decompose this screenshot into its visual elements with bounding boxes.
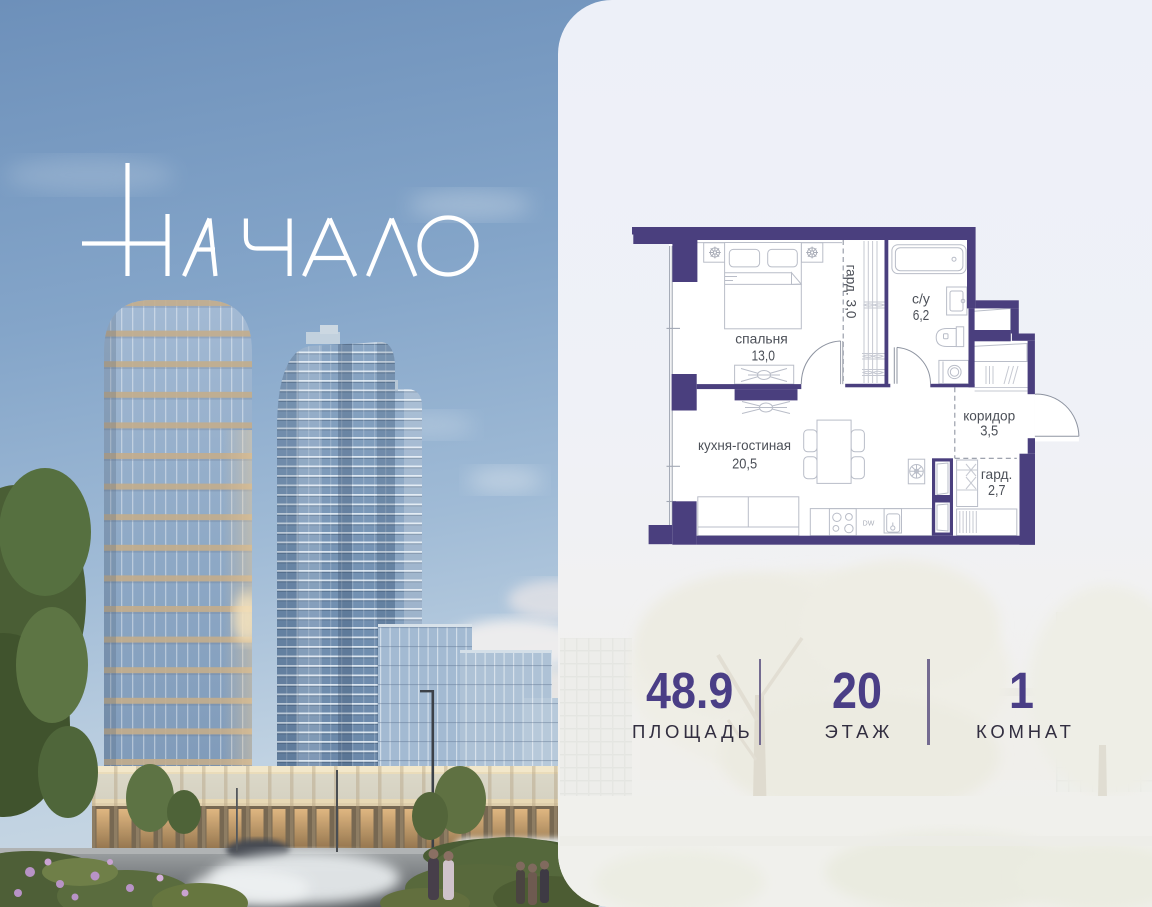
svg-text:коридор: коридор bbox=[963, 407, 1015, 423]
svg-text:20,5: 20,5 bbox=[732, 456, 757, 473]
svg-text:13,0: 13,0 bbox=[751, 348, 775, 365]
svg-text:кухня-гостиная: кухня-гостиная bbox=[698, 437, 791, 453]
svg-text:с/у: с/у bbox=[912, 291, 930, 307]
svg-text:гард.: гард. bbox=[981, 466, 1013, 482]
svg-text:DW: DW bbox=[863, 521, 875, 528]
svg-text:спальня: спальня bbox=[735, 331, 788, 347]
svg-text:6,2: 6,2 bbox=[913, 307, 930, 324]
svg-text:3,5: 3,5 bbox=[980, 423, 998, 440]
svg-text:гард. 3,0: гард. 3,0 bbox=[844, 265, 860, 319]
svg-text:2,7: 2,7 bbox=[988, 482, 1006, 499]
